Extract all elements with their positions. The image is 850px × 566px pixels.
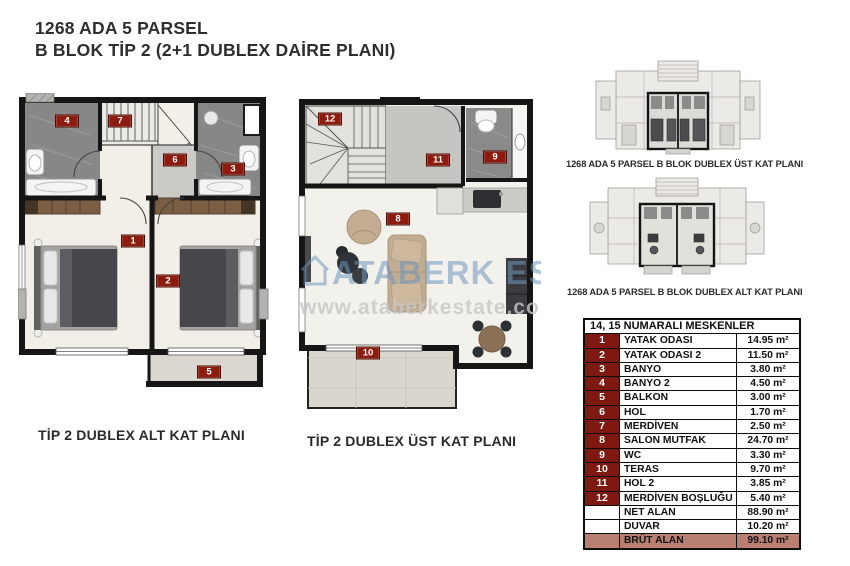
- room-name: WC: [620, 448, 737, 462]
- room-area: 4.50 m²: [737, 377, 801, 391]
- total-name: BRÜT ALAN: [620, 534, 737, 549]
- summary-name: DUVAR: [620, 520, 737, 534]
- room-area: 24.70 m²: [737, 434, 801, 448]
- room-number: 9: [584, 448, 620, 462]
- table-row-11: 11 HOL 2 3.85 m²: [584, 477, 800, 491]
- table-row-brut-alan: BRÜT ALAN 99.10 m²: [584, 534, 800, 549]
- table-row-8: 8 SALON MUTFAK 24.70 m²: [584, 434, 800, 448]
- room-number: 6: [584, 405, 620, 419]
- room-name: BANYO: [620, 362, 737, 376]
- room-badge-3: 3: [221, 163, 245, 176]
- area-table-title: 14, 15 NUMARALI MESKENLER: [584, 319, 800, 334]
- room-number: 12: [584, 491, 620, 505]
- table-row-1: 1 YATAK ODASI 14.95 m²: [584, 334, 800, 348]
- room-badge-4: 4: [55, 115, 79, 128]
- room-area: 14.95 m²: [737, 334, 801, 348]
- table-row-2: 2 YATAK ODASI 2 11.50 m²: [584, 348, 800, 362]
- table-row-10: 10 TERAS 9.70 m²: [584, 462, 800, 476]
- area-table: 14, 15 NUMARALI MESKENLER 1 YATAK ODASI …: [583, 318, 801, 550]
- overview-alt-drawing: [588, 176, 766, 280]
- empty-cell: [584, 520, 620, 534]
- plan-sheet: 1268 ADA 5 PARSEL B BLOK TİP 2 (2+1 DUBL…: [0, 0, 850, 566]
- room-name: HOL 2: [620, 477, 737, 491]
- room-number: 5: [584, 391, 620, 405]
- room-badge-5: 5: [197, 366, 221, 379]
- overview-alt-plan: [588, 176, 766, 280]
- overview-ust-plan: [592, 57, 764, 157]
- table-row-7: 7 MERDİVEN 2.50 m²: [584, 420, 800, 434]
- area-table-title-row: 14, 15 NUMARALI MESKENLER: [584, 319, 800, 334]
- room-number: 10: [584, 462, 620, 476]
- room-name: MERDİVEN BOŞLUĞU: [620, 491, 737, 505]
- table-row-6: 6 HOL 1.70 m²: [584, 405, 800, 419]
- table-row-9: 9 WC 3.30 m²: [584, 448, 800, 462]
- summary-area: 88.90 m²: [737, 505, 801, 519]
- empty-cell: [584, 534, 620, 549]
- table-row-net-alan: NET ALAN 88.90 m²: [584, 505, 800, 519]
- room-name: SALON MUTFAK: [620, 434, 737, 448]
- room-name: HOL: [620, 405, 737, 419]
- page-title: 1268 ADA 5 PARSEL B BLOK TİP 2 (2+1 DUBL…: [35, 18, 396, 61]
- total-area: 99.10 m²: [737, 534, 801, 549]
- room-badge-6: 6: [163, 154, 187, 167]
- ust-kat-drawing: [296, 96, 541, 421]
- room-number: 8: [584, 434, 620, 448]
- room-area: 5.40 m²: [737, 491, 801, 505]
- room-number: 3: [584, 362, 620, 376]
- alt-kat-drawing: [18, 93, 278, 393]
- room-badge-1: 1: [121, 235, 145, 248]
- room-area: 3.30 m²: [737, 448, 801, 462]
- room-number: 4: [584, 377, 620, 391]
- room-area: 3.00 m²: [737, 391, 801, 405]
- room-area: 3.85 m²: [737, 477, 801, 491]
- ust-kat-floorplan: ATABERK ESTATE www.ataberkestate.com 12 …: [296, 96, 541, 421]
- summary-name: NET ALAN: [620, 505, 737, 519]
- room-badge-2: 2: [156, 275, 180, 288]
- room-badge-11: 11: [426, 154, 450, 167]
- room-area: 3.80 m²: [737, 362, 801, 376]
- room-name: BALKON: [620, 391, 737, 405]
- title-line-2: B BLOK TİP 2 (2+1 DUBLEX DAİRE PLANI): [35, 40, 396, 62]
- room-number: 11: [584, 477, 620, 491]
- room-badge-7: 7: [108, 115, 132, 128]
- room-area: 1.70 m²: [737, 405, 801, 419]
- room-number: 7: [584, 420, 620, 434]
- room-name: YATAK ODASI: [620, 334, 737, 348]
- room-name: MERDİVEN: [620, 420, 737, 434]
- room-badge-12: 12: [318, 113, 342, 126]
- title-line-1: 1268 ADA 5 PARSEL: [35, 18, 396, 40]
- room-name: BANYO 2: [620, 377, 737, 391]
- room-name: TERAS: [620, 462, 737, 476]
- summary-area: 10.20 m²: [737, 520, 801, 534]
- room-number: 2: [584, 348, 620, 362]
- room-area: 11.50 m²: [737, 348, 801, 362]
- room-area: 2.50 m²: [737, 420, 801, 434]
- room-badge-9: 9: [483, 151, 507, 164]
- table-row-5: 5 BALKON 3.00 m²: [584, 391, 800, 405]
- table-row-duvar: DUVAR 10.20 m²: [584, 520, 800, 534]
- alt-kat-caption: TİP 2 DUBLEX ALT KAT PLANI: [38, 427, 245, 443]
- room-area: 9.70 m²: [737, 462, 801, 476]
- overview-alt-caption: 1268 ADA 5 PARSEL B BLOK DUBLEX ALT KAT …: [567, 287, 803, 297]
- room-badge-10: 10: [356, 347, 380, 360]
- ust-kat-caption: TİP 2 DUBLEX ÜST KAT PLANI: [307, 433, 516, 449]
- overview-ust-drawing: [592, 57, 764, 157]
- alt-kat-floorplan: 4 7 6 3 1 2 5: [18, 93, 278, 393]
- table-row-4: 4 BANYO 2 4.50 m²: [584, 377, 800, 391]
- table-row-3: 3 BANYO 3.80 m²: [584, 362, 800, 376]
- overview-ust-caption: 1268 ADA 5 PARSEL B BLOK DUBLEX ÜST KAT …: [566, 159, 803, 169]
- room-name: YATAK ODASI 2: [620, 348, 737, 362]
- room-number: 1: [584, 334, 620, 348]
- room-badge-8: 8: [386, 213, 410, 226]
- empty-cell: [584, 505, 620, 519]
- table-row-12: 12 MERDİVEN BOŞLUĞU 5.40 m²: [584, 491, 800, 505]
